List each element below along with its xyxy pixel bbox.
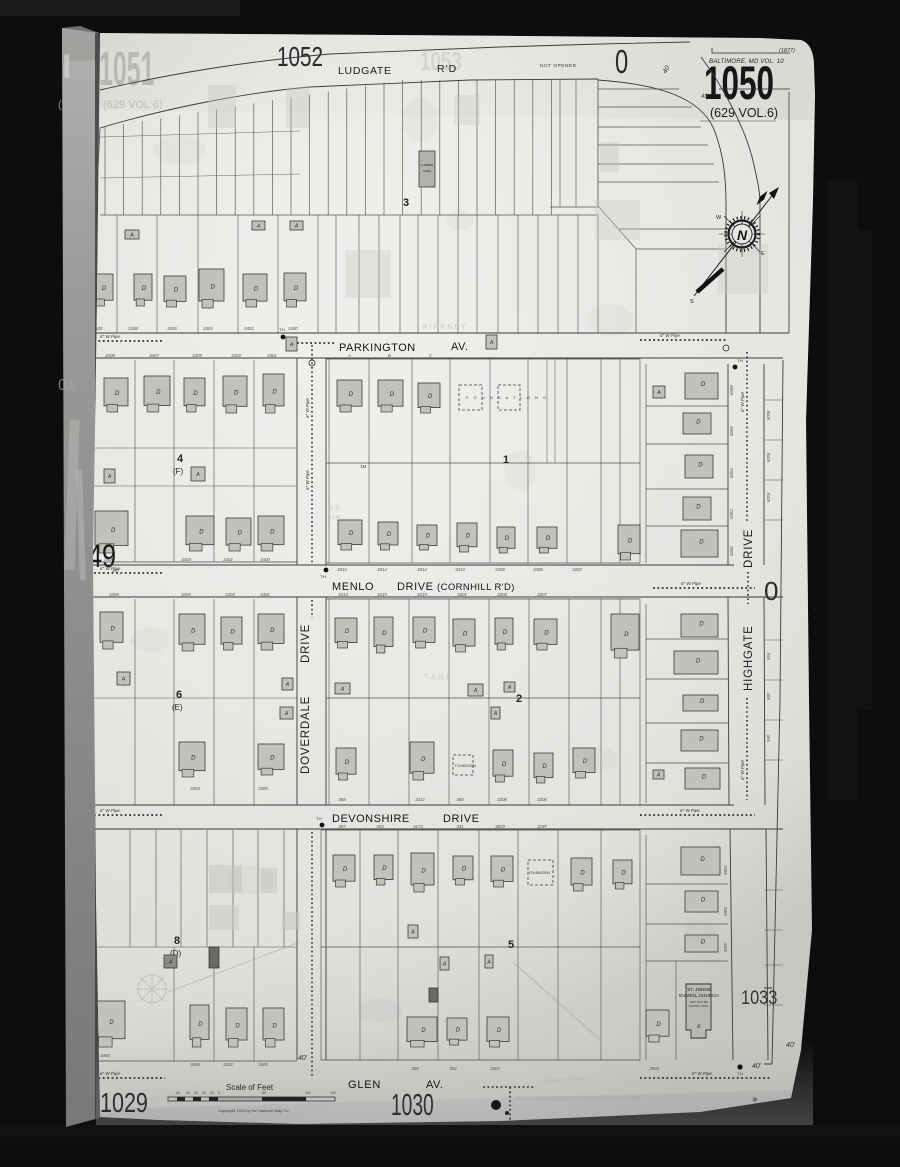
svg-text:40': 40' (786, 1042, 796, 1049)
svg-text:(E): (E) (172, 703, 183, 712)
svg-text:393: 393 (376, 824, 384, 829)
svg-text:A: A (294, 224, 299, 230)
svg-text:3308: 3308 (497, 797, 507, 802)
svg-text:D: D (345, 629, 350, 635)
svg-text:150: 150 (330, 1091, 336, 1095)
svg-text:D: D (349, 392, 354, 398)
svg-text:D: D (426, 534, 431, 540)
svg-text:6" W Pipe: 6" W Pipe (740, 760, 745, 780)
svg-text:306: 306 (411, 1066, 419, 1071)
svg-text:D: D (387, 532, 392, 538)
svg-text:6" W Pipe: 6" W Pipe (681, 581, 701, 586)
svg-text:A: A (195, 472, 200, 478)
svg-text:S: S (690, 299, 694, 305)
svg-text:3404: 3404 (203, 326, 213, 331)
svg-text:E: E (761, 251, 765, 257)
svg-text:D: D (270, 628, 275, 634)
svg-text:3401: 3401 (260, 592, 270, 597)
svg-text:4: 4 (177, 453, 184, 465)
svg-text:D: D (270, 530, 275, 536)
svg-text:D: D (621, 871, 626, 877)
svg-text:3307: 3307 (537, 592, 547, 597)
svg-text:2: 2 (516, 693, 522, 705)
svg-text:A: A (284, 711, 289, 717)
svg-text:6008: 6008 (729, 385, 734, 395)
svg-text:D: D (191, 629, 196, 635)
svg-text:D: D (696, 659, 701, 665)
svg-text:A: A (129, 233, 134, 239)
svg-text:D: D (102, 286, 107, 292)
svg-text:T.H: T.H (279, 327, 285, 332)
svg-text:6" W Pipe: 6" W Pipe (100, 566, 120, 571)
svg-text:A: A (493, 711, 498, 717)
svg-text:D: D (382, 866, 387, 872)
svg-text:D: D (254, 287, 259, 293)
svg-text:D: D (421, 869, 426, 875)
svg-text:A: A (442, 962, 447, 968)
svg-text:D: D (696, 505, 701, 511)
svg-text:1052: 1052 (277, 42, 323, 73)
svg-text:3319: 3319 (417, 592, 427, 597)
svg-text:R'D: R'D (437, 63, 457, 75)
svg-text:3406: 3406 (167, 326, 177, 331)
svg-text:3: 3 (403, 197, 409, 209)
svg-text:D: D (382, 631, 387, 637)
svg-text:D: D (505, 536, 510, 542)
svg-text:I: I (62, 48, 71, 86)
svg-text:5008: 5008 (766, 410, 771, 420)
svg-text:D: D (699, 540, 704, 546)
svg-text:D: D (235, 1024, 240, 1030)
svg-text:D: D (199, 530, 204, 536)
svg-text:D: D (230, 630, 235, 636)
svg-text:3400: 3400 (258, 1062, 268, 1067)
svg-text:D: D (544, 631, 549, 637)
svg-text:B: B (388, 353, 391, 358)
svg-text:3316: 3316 (337, 567, 347, 572)
svg-text:3404: 3404 (190, 786, 200, 791)
svg-text:FOUNDATION: FOUNDATION (529, 871, 551, 875)
svg-text:3900: 3900 (723, 942, 728, 952)
svg-text:A: A (507, 685, 512, 691)
svg-text:A: A (410, 930, 415, 936)
svg-text:3405: 3405 (192, 353, 202, 358)
svg-text:592: 592 (766, 692, 771, 700)
svg-text:A: A (285, 682, 290, 688)
svg-text:EVANGL.CHURCH: EVANGL.CHURCH (679, 993, 718, 998)
svg-text:3315: 3315 (377, 592, 387, 597)
svg-text:D: D (238, 531, 243, 537)
svg-text:3310: 3310 (455, 567, 465, 572)
svg-text:D: D (463, 632, 468, 638)
svg-text:6006: 6006 (729, 426, 734, 436)
svg-text:3403: 3403 (231, 353, 241, 358)
svg-text:A: A (473, 688, 478, 694)
svg-text:6" W Pipe: 6" W Pipe (692, 1071, 712, 1076)
svg-text:LUDGATE: LUDGATE (338, 65, 392, 77)
svg-text:A: A (121, 677, 126, 683)
svg-text:LUMBER: LUMBER (421, 163, 434, 167)
svg-text:D: D (624, 632, 629, 638)
svg-text:6" W Pipe: 6" W Pipe (305, 470, 310, 490)
svg-text:A: A (486, 960, 491, 966)
svg-text:6" W Pipe: 6" W Pipe (100, 1071, 120, 1076)
svg-text:D: D (349, 531, 354, 537)
svg-text:397: 397 (338, 824, 346, 829)
svg-text:D: D (580, 871, 585, 877)
svg-text:TANK: TANK (424, 674, 454, 681)
svg-text:3400: 3400 (260, 557, 270, 562)
svg-text:D: D (701, 940, 706, 946)
svg-text:D: D (462, 867, 467, 873)
svg-text:3402: 3402 (223, 557, 233, 562)
svg-text:3409: 3409 (105, 353, 115, 358)
svg-text:(629 VOL 6): (629 VOL 6) (103, 99, 163, 111)
svg-text:D: D (198, 1022, 203, 1028)
svg-text:D: D (699, 737, 704, 743)
svg-text:D: D (191, 756, 196, 762)
svg-text:D: D (423, 629, 428, 635)
svg-text:ST. JOHNS: ST. JOHNS (687, 987, 710, 992)
svg-text:6000: 6000 (729, 546, 734, 556)
svg-text:D: D (628, 539, 633, 545)
svg-text:40': 40' (298, 1055, 308, 1062)
svg-text:20: 20 (202, 1091, 206, 1095)
svg-text:6" W Pipe: 6" W Pipe (660, 333, 680, 338)
svg-text:1029: 1029 (100, 1087, 148, 1118)
svg-text:40: 40 (186, 1091, 190, 1095)
svg-text:D: D (700, 699, 705, 705)
svg-text:100: 100 (305, 1091, 311, 1095)
svg-text:T.H: T.H (320, 574, 326, 579)
svg-text:D: D (700, 857, 705, 863)
svg-text:N: N (737, 227, 748, 243)
svg-text:D: D (174, 288, 179, 294)
svg-text:PINKNEY: PINKNEY (423, 324, 468, 331)
svg-text:3313: 3313 (338, 592, 348, 597)
svg-text:3409: 3409 (109, 592, 119, 597)
svg-text:D: D (546, 536, 551, 542)
svg-text:6002: 6002 (729, 509, 734, 519)
svg-text:3306: 3306 (537, 797, 547, 802)
svg-text:DRIVE: DRIVE (743, 529, 755, 568)
svg-text:D: D (111, 528, 116, 534)
svg-text:A: A (289, 342, 294, 348)
svg-text:3455: 3455 (100, 1053, 110, 1058)
svg-text:W: W (716, 215, 722, 221)
svg-text:SHED: SHED (423, 169, 432, 173)
svg-text:6" W Pipe: 6" W Pipe (100, 334, 120, 339)
svg-text:D: D (421, 1028, 426, 1034)
svg-text:D: D (142, 286, 147, 292)
svg-text:6" W Pipe: 6" W Pipe (740, 392, 745, 412)
svg-text:3309: 3309 (497, 592, 507, 597)
svg-text:(629 VOL.6): (629 VOL.6) (710, 106, 778, 120)
svg-text:(F): (F) (173, 467, 184, 476)
svg-text:A: A (656, 390, 661, 396)
svg-text:334: 334 (449, 1066, 457, 1071)
svg-text:A: A (656, 773, 661, 779)
svg-text:3312: 3312 (417, 567, 427, 572)
svg-text:D: D (272, 1024, 277, 1030)
svg-text:0: 0 (764, 576, 778, 606)
svg-text:D: D (699, 622, 704, 628)
svg-text:01: 01 (58, 377, 76, 394)
svg-text:3404: 3404 (181, 557, 191, 562)
svg-text:3406: 3406 (190, 1062, 200, 1067)
svg-text:D: D (542, 764, 547, 770)
svg-text:5: 5 (508, 939, 514, 951)
svg-text:Scale of Feet: Scale of Feet (545, 1077, 586, 1084)
svg-text:A: A (168, 960, 173, 966)
svg-text:DRIVE: DRIVE (300, 624, 312, 663)
svg-text:A: A (489, 340, 494, 346)
svg-text:1030: 1030 (391, 1089, 434, 1123)
svg-text:D: D (156, 390, 161, 396)
svg-text:50: 50 (176, 1091, 180, 1095)
svg-text:0: 0 (218, 1091, 220, 1095)
svg-text:3308: 3308 (495, 567, 505, 572)
svg-text:T.H: T.H (737, 358, 743, 363)
svg-text:3173: 3173 (413, 824, 423, 829)
svg-text:D: D (272, 390, 277, 396)
svg-text:D: D (701, 382, 706, 388)
svg-text:0: 0 (615, 44, 628, 81)
svg-text:(1877): (1877) (779, 48, 795, 54)
svg-text:DRIVE: DRIVE (397, 581, 434, 593)
svg-text:FOUNDATION: FOUNDATION (455, 764, 477, 768)
svg-text:40: 40 (701, 94, 708, 100)
svg-text:D: D (345, 760, 350, 766)
svg-text:10: 10 (210, 1091, 214, 1095)
svg-text:50: 50 (262, 1091, 266, 1095)
svg-text:3314: 3314 (377, 567, 387, 572)
svg-text:AV.: AV. (451, 341, 468, 353)
svg-text:D: D (698, 463, 703, 469)
svg-text:HIGHGATE: HIGHGATE (743, 625, 755, 691)
svg-text:D: D (234, 391, 239, 397)
svg-text:D: D (109, 1020, 114, 1026)
svg-text:6" W Pipe: 6" W Pipe (305, 398, 310, 418)
svg-text:594: 594 (766, 652, 771, 660)
svg-text:A: A (107, 474, 112, 480)
svg-text:✺: ✺ (752, 1096, 758, 1104)
svg-text:T.H: T.H (737, 1071, 743, 1076)
svg-text:D: D (115, 391, 120, 397)
svg-text:6" W Pipe: 6" W Pipe (680, 808, 700, 813)
svg-text:331: 331 (456, 824, 464, 829)
svg-text:3302: 3302 (490, 1066, 500, 1071)
svg-text:D: D (696, 420, 701, 426)
svg-text:D: D (111, 627, 116, 633)
svg-text:D: D (501, 868, 506, 874)
svg-text:D: D (466, 534, 471, 540)
svg-text:D: D (428, 394, 433, 400)
svg-text:D: D (343, 867, 348, 873)
svg-text:D: D (193, 391, 198, 397)
svg-text:DOVERDALE: DOVERDALE (300, 696, 312, 774)
svg-text:D: D (270, 756, 275, 762)
svg-text:Copyright 1929 by the Sanborn: Copyright 1929 by the Sanborn Map Co. (218, 1108, 290, 1113)
svg-text:A: A (347, 353, 351, 358)
svg-text:F O U N D A T I O N S: F O U N D A T I O N S (466, 395, 548, 400)
svg-text:40': 40' (752, 1063, 762, 1070)
svg-text:A: A (256, 224, 261, 230)
svg-text:3402: 3402 (244, 326, 254, 331)
svg-text:D: D (702, 775, 707, 781)
svg-text:6004: 6004 (729, 468, 734, 478)
svg-text:A: A (340, 687, 345, 693)
svg-text:R.S: R.S (328, 505, 340, 512)
svg-text:3400: 3400 (258, 786, 268, 791)
svg-text:3902: 3902 (723, 906, 728, 916)
svg-text:590: 590 (766, 734, 771, 742)
svg-text:358: 358 (338, 797, 346, 802)
svg-text:1050: 1050 (704, 58, 774, 110)
svg-text:DOMES. DWG.: DOMES. DWG. (689, 1004, 710, 1008)
svg-text:3187: 3187 (537, 824, 547, 829)
svg-text:3408: 3408 (128, 326, 138, 331)
svg-text:3403: 3403 (225, 592, 235, 597)
svg-text:3405: 3405 (181, 592, 191, 597)
svg-text:5004: 5004 (766, 492, 771, 502)
svg-text:3402: 3402 (223, 1062, 233, 1067)
svg-text:D: D (456, 1028, 461, 1034)
svg-text:T.H: T.H (316, 816, 322, 821)
svg-text:D: D (497, 1028, 502, 1034)
svg-text:D: D (421, 757, 426, 763)
svg-text:5006: 5006 (766, 452, 771, 462)
svg-text:3301: 3301 (457, 592, 467, 597)
svg-text:D: D (656, 1022, 661, 1028)
svg-text:(9: (9 (58, 99, 68, 111)
svg-text:Scale of Feet: Scale of Feet (226, 1083, 274, 1092)
svg-text:3306: 3306 (533, 567, 543, 572)
svg-text:D: D (503, 630, 508, 636)
svg-text:GLEN: GLEN (348, 1079, 381, 1091)
svg-text:3302: 3302 (572, 567, 582, 572)
svg-text:3401: 3401 (267, 353, 277, 358)
svg-text:3904: 3904 (723, 865, 728, 875)
svg-text:8: 8 (174, 935, 180, 947)
svg-text:3407: 3407 (149, 353, 159, 358)
svg-text:3904: 3904 (649, 1066, 659, 1071)
svg-text:D: D (701, 898, 706, 904)
svg-text:3400: 3400 (288, 326, 298, 331)
svg-text:6: 6 (176, 689, 182, 701)
svg-text:NOT OPENED: NOT OPENED (540, 63, 577, 69)
svg-text:1M: 1M (360, 464, 367, 469)
svg-text:D: D (502, 762, 507, 768)
svg-text:6" W Pipe: 6" W Pipe (100, 808, 120, 813)
svg-text:350: 350 (456, 797, 464, 802)
svg-text:D: D (211, 285, 216, 291)
svg-text:D: D (390, 392, 395, 398)
svg-text:D: D (294, 286, 299, 292)
svg-text:30: 30 (194, 1091, 198, 1095)
svg-text:3312: 3312 (415, 797, 425, 802)
svg-text:3829: 3829 (495, 824, 505, 829)
